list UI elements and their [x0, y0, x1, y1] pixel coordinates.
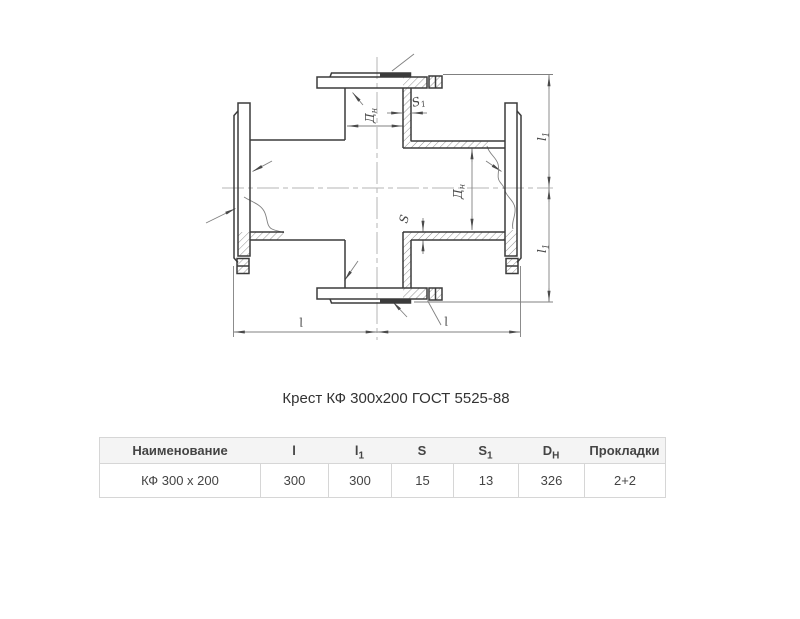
table-row: КФ 300 x 200 300 300 15 13 326 2+2 [100, 464, 665, 497]
cell-dn: 326 [518, 464, 584, 497]
dim-label-l-right: l [443, 314, 449, 328]
dim-label-l1-bottom: l1 [535, 244, 551, 253]
page: Дн S1 Дн S l1 l1 l l Крест КФ 300x200 ГО… [0, 0, 800, 619]
dim-label-l-left: l [298, 315, 304, 329]
dim-label-s1: S1 [410, 93, 427, 111]
cell-l: 300 [260, 464, 328, 497]
technical-drawing: Дн S1 Дн S l1 l1 l l [0, 0, 800, 380]
dim-label-l1-top: l1 [535, 132, 551, 141]
centerlines [222, 57, 553, 340]
table-header-row: Наименование l l1 S S1 DH Прокладки [100, 438, 665, 464]
col-header-s1: S1 [453, 438, 518, 463]
cell-l1: 300 [328, 464, 391, 497]
dimensions-table: Наименование l l1 S S1 DH Прокладки КФ 3… [99, 437, 666, 498]
dim-label-dn-branch: Дн [363, 108, 379, 124]
col-header-l: l [260, 438, 328, 463]
col-header-gaskets: Прокладки [584, 438, 665, 463]
break-lines [244, 146, 515, 233]
dim-label-s: S [396, 213, 412, 225]
col-header-l1: l1 [328, 438, 391, 463]
dim-label-dn-run: Дн [451, 184, 467, 200]
drawing-title: Крест КФ 300x200 ГОСТ 5525-88 [0, 390, 792, 407]
cell-name: КФ 300 x 200 [100, 464, 260, 497]
cell-s: 15 [391, 464, 453, 497]
cell-gaskets: 2+2 [584, 464, 665, 497]
col-header-name: Наименование [100, 438, 260, 463]
cell-s1: 13 [453, 464, 518, 497]
col-header-dn: DH [518, 438, 584, 463]
col-header-s: S [391, 438, 453, 463]
